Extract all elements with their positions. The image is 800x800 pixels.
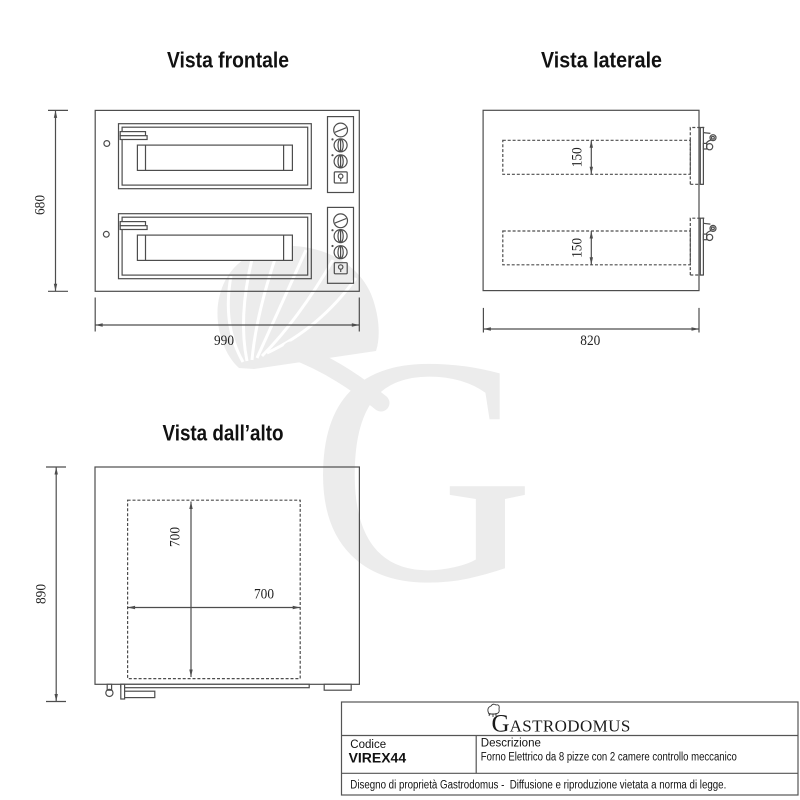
svg-text:700: 700 (168, 527, 184, 547)
svg-text:Vista dall’alto: Vista dall’alto (163, 421, 284, 446)
svg-text:680: 680 (33, 195, 49, 215)
svg-text:150: 150 (570, 238, 586, 258)
svg-text:Descrizione: Descrizione (481, 738, 541, 750)
svg-text:VIREX44: VIREX44 (349, 751, 407, 766)
svg-text:700: 700 (254, 587, 274, 603)
svg-text:Forno Elettrico da 8 pizze con: Forno Elettrico da 8 pizze con 2 camere … (481, 752, 737, 764)
svg-text:150: 150 (570, 147, 586, 167)
svg-text:990: 990 (214, 333, 234, 349)
svg-text:890: 890 (34, 584, 50, 604)
svg-text:Vista laterale: Vista laterale (541, 48, 662, 73)
svg-text:GASTRODOMUS: GASTRODOMUS (492, 711, 631, 738)
svg-text:Codice: Codice (350, 739, 386, 751)
svg-text:820: 820 (580, 333, 600, 349)
svg-text:Vista frontale: Vista frontale (167, 48, 289, 73)
svg-text:Disegno di proprietà Gastrodom: Disegno di proprietà Gastrodomus - Diffu… (350, 780, 726, 792)
svg-text:G: G (310, 290, 534, 650)
